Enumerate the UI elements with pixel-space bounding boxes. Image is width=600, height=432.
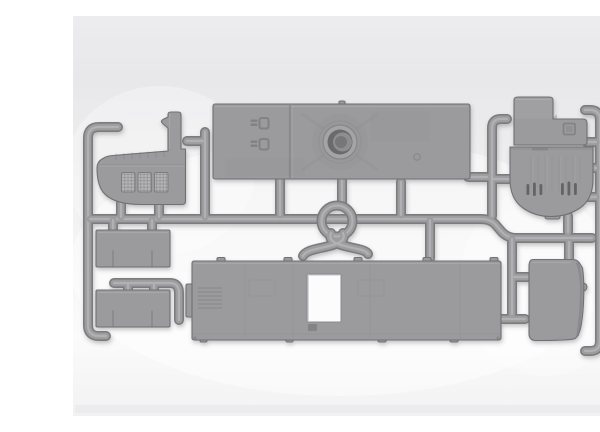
floor-panel-body — [192, 261, 501, 340]
floor-panel-corner-dot-left — [193, 336, 196, 339]
door-panel — [529, 260, 587, 341]
deck-shade-2 — [225, 158, 305, 176]
cab-window-1 — [122, 173, 136, 193]
floor-panel-latch-detail — [308, 324, 317, 331]
roof-deck-panel — [213, 101, 470, 179]
bench-panel-upper — [96, 230, 170, 267]
bench-panel-upper-body — [96, 230, 170, 267]
hood-top-sheen — [515, 98, 553, 119]
cab-window-2 — [138, 173, 152, 193]
cab-front-panel — [510, 147, 593, 220]
hatch-dome-core — [335, 136, 347, 148]
floor-panel-corner-dot-right — [496, 336, 499, 339]
cab-front-top-seam — [511, 147, 593, 151]
sprue-photo — [40, 16, 600, 416]
floor-panel-cutout — [307, 274, 341, 322]
sprue-illustration — [40, 16, 600, 416]
cab-window-3 — [155, 173, 169, 193]
hood-square-inner — [566, 126, 573, 132]
engine-hood-panel — [514, 97, 587, 145]
floor-panel — [186, 258, 501, 343]
door-panel-body — [529, 260, 584, 341]
cab-front-dark-dash — [532, 147, 548, 151]
deck-shade-1 — [370, 111, 430, 141]
bench-panel-lower — [96, 290, 170, 327]
bench-panel-lower-body — [96, 290, 170, 327]
